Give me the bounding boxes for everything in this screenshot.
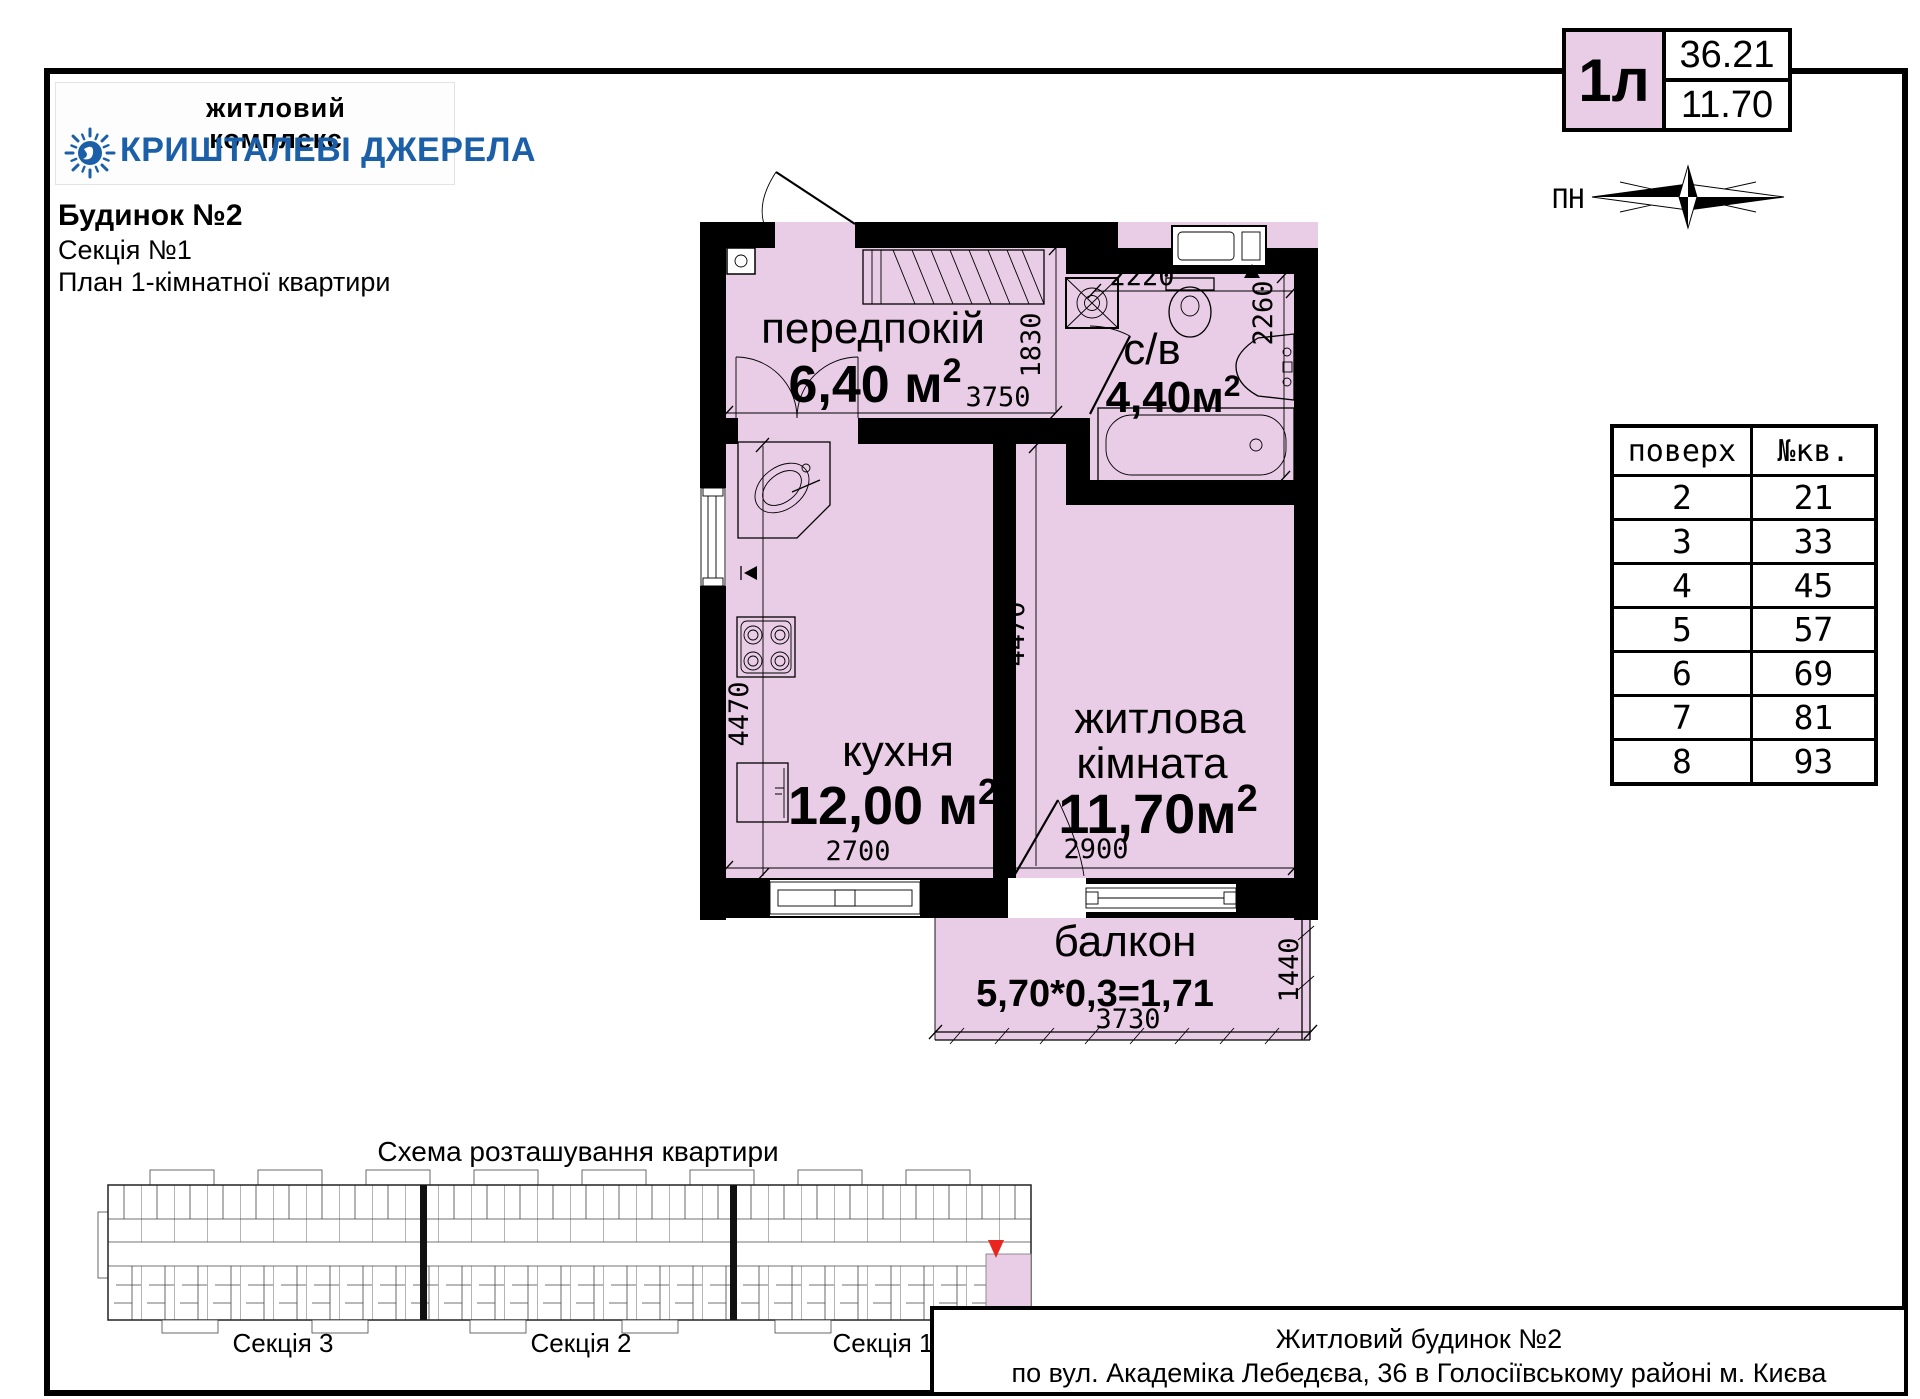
plan-title: План 1-кімнатної квартири — [58, 266, 390, 298]
location-schema — [98, 1170, 1031, 1333]
section-label-3: Секція 3 — [232, 1328, 333, 1359]
section-title: Секція №1 — [58, 234, 390, 266]
logo: житловий комплекс КРИШТАЛЕВІ ДЖЕРЕЛА — [55, 82, 455, 185]
schema-title: Схема розташування квартири — [328, 1136, 828, 1168]
washer — [1172, 226, 1266, 266]
building-title: Будинок №2 — [58, 198, 390, 234]
bathroom-name: с/в — [1123, 325, 1181, 374]
kitchen-name: кухня — [842, 727, 954, 776]
footer-line1: Житловий будинок №2 — [934, 1322, 1904, 1356]
section-label-1: Секція 1 — [832, 1328, 933, 1359]
living-name-1: житлова — [1074, 694, 1246, 743]
dim-living-h: 4470 — [1000, 601, 1031, 666]
compass: ПН — [1552, 166, 1784, 228]
table-row: 781 — [1614, 694, 1874, 738]
sun-icon — [64, 125, 116, 181]
table-row: 333 — [1614, 518, 1874, 562]
col-apt: №кв. — [1750, 428, 1874, 474]
title-block: Будинок №2 Секція №1 План 1-кімнатної кв… — [58, 198, 390, 298]
dim-living-w: 2900 — [1063, 834, 1128, 865]
unit-type: 1л — [1566, 32, 1666, 128]
dim-kitchen-w: 2700 — [825, 836, 890, 867]
table-row: 445 — [1614, 562, 1874, 606]
footer-address: Житловий будинок №2 по вул. Академіка Ле… — [930, 1306, 1908, 1396]
unit-badge: 1л 36.21 11.70 — [1562, 28, 1792, 132]
dim-bathroom-h: 2260 — [1248, 280, 1279, 345]
table-row: 221 — [1614, 474, 1874, 518]
section-label-2: Секція 2 — [530, 1328, 631, 1359]
kitchen-area: 12,00 м2 — [788, 771, 998, 836]
dim-kitchen-h: 4470 — [724, 681, 755, 746]
footer-line2: по вул. Академіка Лебедєва, 36 в Голосії… — [934, 1356, 1904, 1390]
unit-area-living: 11.70 — [1666, 82, 1788, 128]
balcony-window — [1086, 884, 1236, 912]
dim-bathroom-w: 2220 — [1109, 261, 1174, 292]
section-joint — [730, 1185, 737, 1320]
hallway-area: 6,40 м2 — [788, 352, 961, 414]
dim-hallway-w: 3750 — [965, 382, 1030, 413]
floors-table-header: поверх №кв. — [1614, 428, 1874, 474]
dim-balcony-h: 1440 — [1274, 937, 1305, 1002]
entry-box — [727, 248, 755, 274]
entrance-door — [762, 172, 855, 224]
hallway-name: передпокій — [761, 304, 985, 353]
north-label: ПН — [1552, 184, 1585, 215]
kitchen-side-window — [700, 488, 726, 586]
table-row: 669 — [1614, 650, 1874, 694]
complex-name: КРИШТАЛЕВІ ДЖЕРЕЛА — [120, 131, 450, 170]
balcony-door-opening — [1008, 878, 1086, 918]
living-name-2: кімната — [1076, 739, 1228, 788]
bathroom-area: 4,40м2 — [1106, 370, 1241, 422]
balcony-name: балкон — [1054, 917, 1197, 966]
kitchen-window — [770, 880, 920, 916]
dim-balcony-w: 3730 — [1095, 1004, 1160, 1035]
floors-table: поверх №кв. 221 333 445 557 669 781 893 — [1610, 424, 1878, 786]
dim-hallway-h: 1830 — [1016, 312, 1047, 377]
section-joint — [420, 1185, 427, 1320]
unit-area-total: 36.21 — [1666, 32, 1788, 82]
col-floor: поверх — [1614, 428, 1750, 474]
table-row: 893 — [1614, 738, 1874, 782]
table-row: 557 — [1614, 606, 1874, 650]
